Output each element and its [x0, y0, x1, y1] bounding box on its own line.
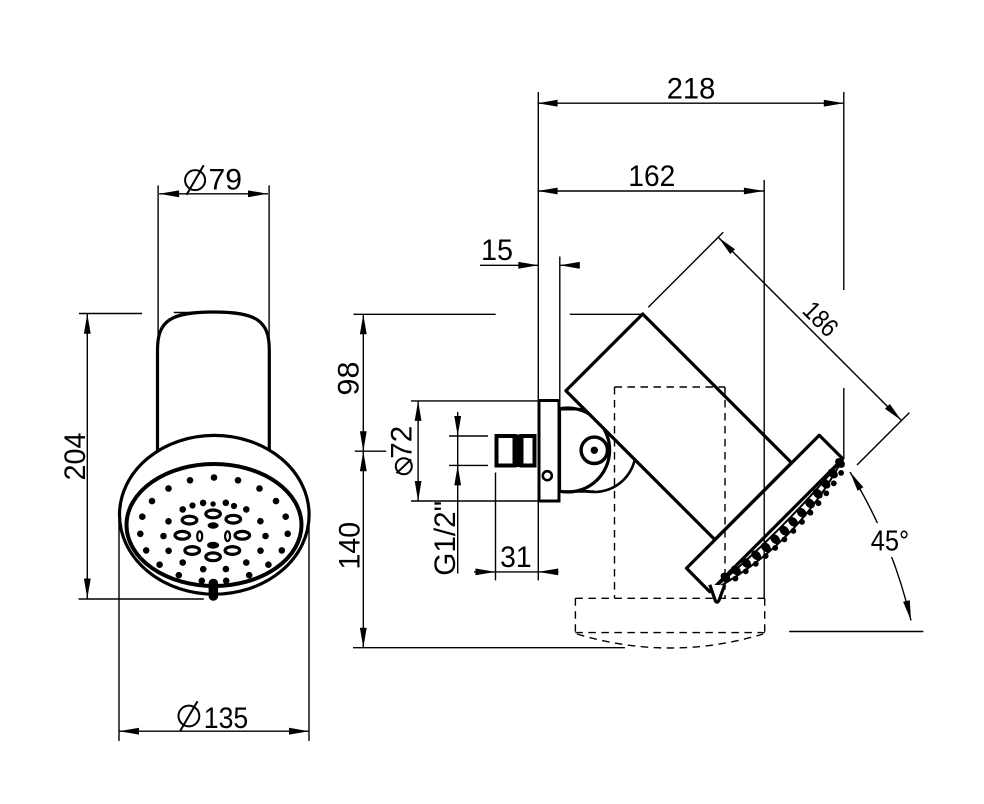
- svg-text:31: 31: [500, 541, 532, 574]
- svg-text:218: 218: [667, 72, 716, 105]
- svg-text:72: 72: [385, 426, 418, 459]
- svg-text:15: 15: [481, 234, 513, 267]
- svg-text:79: 79: [208, 164, 242, 197]
- svg-text:135: 135: [204, 702, 249, 735]
- svg-text:140: 140: [333, 522, 366, 570]
- svg-text:98: 98: [333, 362, 366, 396]
- svg-text:45°: 45°: [871, 526, 910, 558]
- svg-text:162: 162: [628, 160, 675, 193]
- svg-text:204: 204: [59, 433, 92, 481]
- svg-text:G1/2": G1/2": [429, 501, 462, 576]
